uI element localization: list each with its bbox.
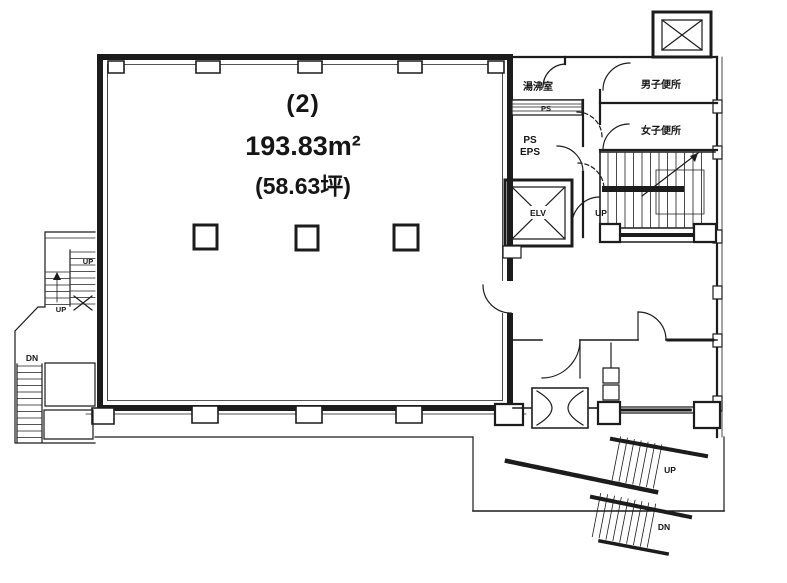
main-room-number: (2) (286, 90, 320, 118)
corridor-dashed-arc (577, 112, 602, 137)
ps-eps-label-2: EPS (520, 147, 540, 158)
kitchenette-room: 湯沸室 (512, 57, 583, 100)
kitchenette-label: 湯沸室 (523, 80, 553, 93)
stair-rail-2 (507, 461, 656, 492)
interior-columns (194, 225, 418, 250)
main-room-area-m2: 193.83m² (245, 131, 361, 161)
stair-mid-landing-bar (602, 186, 684, 192)
main-room: (2) 193.83m² (58.63坪) (86, 57, 526, 425)
up-main-stair-label: UP (595, 208, 607, 218)
pipe-shaft-label: PS (541, 104, 551, 113)
up-left-upper-label: UP (83, 257, 93, 266)
ps-eps-door-arc (557, 146, 583, 172)
up-left-lower-label: UP (56, 305, 66, 314)
entrance-double-door (532, 388, 588, 428)
ps-eps-label-1: PS (523, 135, 537, 146)
floor-plan: (2) 193.83m² (58.63坪) 湯沸室 (0, 0, 787, 583)
left-wing: UP UP DN (15, 232, 95, 443)
pipe-shaft-band: PS (512, 100, 582, 115)
left-upper-stair: UP UP (46, 250, 95, 314)
top-wall-columns (108, 61, 504, 73)
dn-bottom-right-label: DN (658, 522, 670, 532)
up-bottom-right-label: UP (664, 465, 676, 475)
main-room-door (483, 281, 513, 313)
floor-plan-drawing: (2) 193.83m² (58.63坪) 湯沸室 (0, 0, 787, 583)
elevator: ELV (503, 180, 572, 258)
stair-rail-1 (612, 439, 706, 456)
main-staircase: UP (595, 150, 716, 242)
elevator-label: ELV (530, 208, 546, 218)
toilets: 男子便所 女子便所 (577, 63, 717, 150)
left-lower-stair: DN (17, 353, 95, 442)
roof-shaft (653, 12, 711, 57)
right-room-door-arc (638, 312, 666, 340)
right-wing: 湯沸室 PS PS EPS ELV (503, 12, 722, 437)
dn-left-label: DN (26, 353, 38, 363)
mens-toilet-label: 男子便所 (641, 78, 681, 91)
corridor-door-arc (542, 340, 580, 378)
womens-toilet-label: 女子便所 (641, 124, 681, 137)
mens-toilet-door-arc (603, 63, 630, 90)
main-room-area-tsubo: (58.63坪) (255, 173, 351, 199)
womens-toilet-door-arc (603, 124, 629, 150)
exterior-stairs: UP DN (507, 437, 706, 554)
